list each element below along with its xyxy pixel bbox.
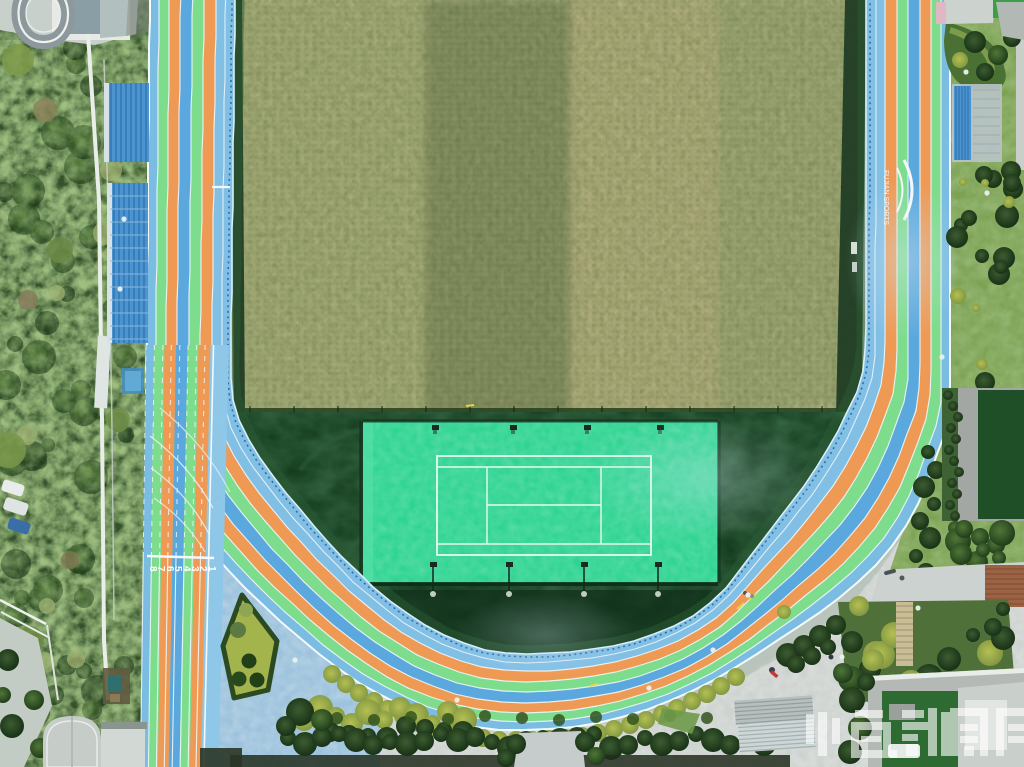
svg-text:1: 1 (206, 566, 217, 572)
svg-text:FUJIAN SPORTS: FUJIAN SPORTS (882, 170, 889, 225)
